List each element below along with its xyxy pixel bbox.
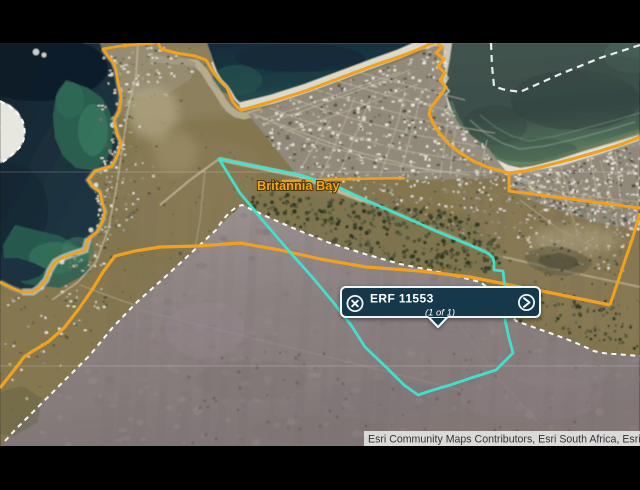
svg-text:Esri Community Maps Contributo: Esri Community Maps Contributors, Esri S… (368, 434, 640, 446)
svg-text:ERF 11553: ERF 11553 (370, 292, 434, 306)
svg-text:Britannia Bay: Britannia Bay (257, 178, 340, 193)
svg-text:(1 of 1): (1 of 1) (425, 308, 455, 319)
